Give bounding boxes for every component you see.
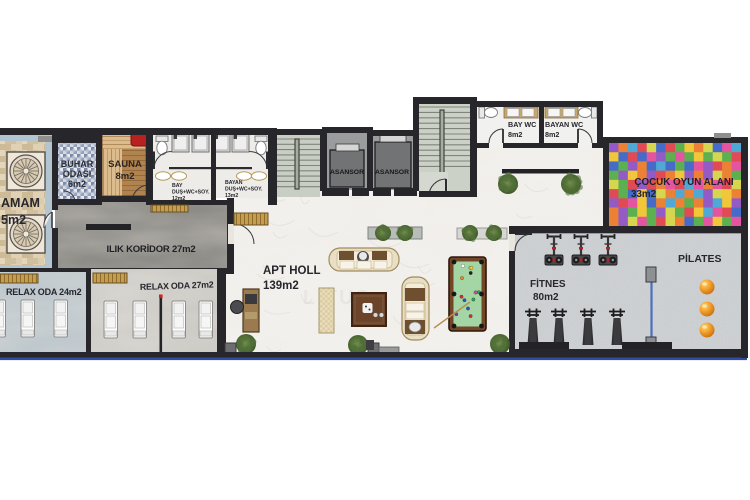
svg-text:ASANSOR: ASANSOR [330, 169, 364, 176]
svg-text:DUŞ+WC+SOY.: DUŞ+WC+SOY. [225, 187, 263, 193]
svg-text:BAY: BAY [172, 183, 183, 189]
svg-text:8m2: 8m2 [115, 171, 134, 182]
svg-text:FİTNES: FİTNES [530, 277, 566, 290]
svg-text:BUHAR: BUHAR [61, 159, 94, 169]
svg-text:ODASI: ODASI [63, 169, 92, 179]
svg-text:139m2: 139m2 [263, 280, 299, 292]
svg-text:PİLATES: PİLATES [678, 252, 722, 265]
svg-text:8m2: 8m2 [545, 130, 559, 139]
svg-text:ILIK KORİDOR 27m2: ILIK KORİDOR 27m2 [107, 244, 196, 255]
svg-text:5m2: 5m2 [1, 213, 26, 227]
svg-text:AMAM: AMAM [1, 196, 40, 210]
svg-text:SAUNA: SAUNA [108, 159, 142, 170]
svg-text:ÇOCUK OYUN ALANI: ÇOCUK OYUN ALANI [634, 177, 734, 188]
svg-text:80m2: 80m2 [533, 292, 559, 303]
svg-text:6m2: 6m2 [68, 179, 86, 189]
svg-text:BAYAN WC: BAYAN WC [545, 120, 583, 129]
svg-text:APT HOLL: APT HOLL [263, 265, 321, 277]
svg-text:BAYAN: BAYAN [225, 180, 243, 186]
svg-text:DUŞ+WC+SOY.: DUŞ+WC+SOY. [172, 190, 210, 196]
svg-text:BAY WC: BAY WC [508, 120, 536, 129]
svg-text:ASANSOR: ASANSOR [375, 169, 409, 176]
svg-text:8m2: 8m2 [508, 130, 522, 139]
svg-text:33m2: 33m2 [631, 189, 657, 200]
svg-text:RELAX ODA 24m2: RELAX ODA 24m2 [6, 287, 82, 297]
